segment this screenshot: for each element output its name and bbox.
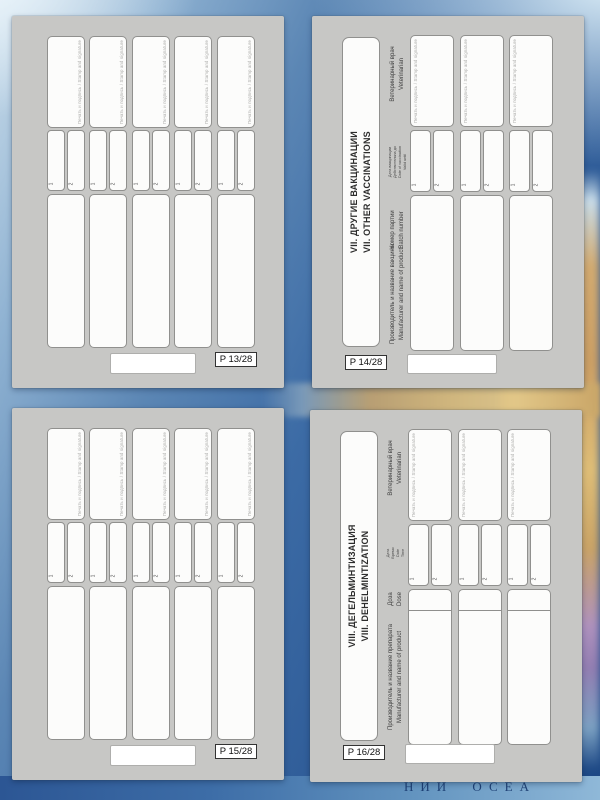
cell-number: 1 — [218, 575, 224, 578]
record-strip: Печать и подпись / Stamp and signature 1… — [410, 16, 454, 388]
cell-number: 2 — [110, 183, 116, 186]
stamp-signature-box: Печать и подпись / Stamp and signature — [174, 428, 212, 520]
date-cell-2: 2 — [532, 130, 553, 192]
sticker-area — [132, 194, 170, 348]
cell-number: 2 — [533, 184, 539, 187]
footer-blank-box — [405, 744, 495, 764]
dose-field-divider — [459, 610, 501, 611]
cell-number: 1 — [175, 575, 181, 578]
record-column: Печать и подпись / Stamp and signature 1… — [132, 408, 170, 780]
date-cell-1: 1 — [410, 130, 431, 192]
date-cell-2: 2 — [194, 522, 212, 583]
date-cells: 1 2 — [217, 522, 255, 583]
page-number: P 15/28 — [220, 746, 253, 757]
record-column: Печать и подпись / Stamp and signature 1… — [89, 408, 127, 780]
date-cell-1: 1 — [47, 522, 65, 583]
sticker-area — [89, 586, 127, 740]
section-title-ru: VIII. ДЕГЕЛЬМИНТИЗАЦИЯ — [346, 524, 359, 647]
cell-number: 2 — [68, 183, 74, 186]
cell-number: 1 — [48, 575, 54, 578]
cell-number: 1 — [409, 578, 415, 581]
stamp-note: Печать и подпись / Stamp and signature — [247, 432, 252, 516]
cell-number: 2 — [484, 184, 490, 187]
date-cell-2: 2 — [152, 130, 170, 191]
veterinarian-stamp-box: Печать и подпись / Stamp and signature — [507, 429, 551, 521]
stamp-signature-box: Печать и подпись / Stamp and signature — [47, 428, 85, 520]
cell-number: 1 — [133, 575, 139, 578]
record-column: Печать и подпись / Stamp and signature 1… — [47, 16, 85, 388]
date-cells: 1 2 — [458, 524, 502, 586]
date-cell-2: 2 — [152, 522, 170, 583]
stamp-note: Печать и подпись / Stamp and signature — [162, 40, 167, 124]
page-number-badge: P 14/28 — [345, 355, 387, 370]
footer-blank-box — [407, 354, 497, 374]
cell-number: 2 — [531, 578, 537, 581]
cell-number: 1 — [508, 578, 514, 581]
date-cell-2: 2 — [483, 130, 504, 192]
vaccine-sticker-area — [410, 195, 454, 351]
section-title-en: VIII. DEHELMINTIZATION — [359, 524, 372, 647]
date-cell-1: 1 — [217, 130, 235, 191]
veterinarian-stamp-box: Печать и подпись / Stamp and signature — [410, 35, 454, 127]
date-cell-1: 1 — [174, 522, 192, 583]
record-column: Печать и подпись / Stamp and signature 1… — [174, 408, 212, 780]
cell-number: 1 — [510, 184, 516, 187]
cell-number: 1 — [90, 575, 96, 578]
stamp-note: Печать и подпись / Stamp and signature — [512, 39, 517, 123]
cell-number: 1 — [48, 183, 54, 186]
record-strip: Печать и подпись / Stamp and signature 1… — [458, 410, 502, 782]
date-cells: 1 2 — [47, 522, 85, 583]
section-title-ru: VII. ДРУГИЕ ВАКЦИНАЦИИ — [348, 131, 361, 253]
date-cell-1: 1 — [174, 130, 192, 191]
stamp-note: Печать и подпись / Stamp and signature — [119, 432, 124, 516]
section-title-en: VII. OTHER VACCINATIONS — [361, 131, 374, 253]
date-cell-2: 2 — [109, 130, 127, 191]
stamp-note: Печать и подпись / Stamp and signature — [119, 40, 124, 124]
passport-page-14: VII. ДРУГИЕ ВАКЦИНАЦИИ VII. OTHER VACCIN… — [312, 16, 584, 388]
stamp-signature-box: Печать и подпись / Stamp and signature — [132, 36, 170, 128]
cell-number: 1 — [461, 184, 467, 187]
date-cells: 1 2 — [408, 524, 452, 586]
date-cells: 1 2 — [47, 130, 85, 191]
cell-number: 2 — [195, 575, 201, 578]
date-cell-1: 1 — [132, 522, 150, 583]
screenshot-root: Lapt НИЙ ОСЕА Печать и подпись / Stamp a… — [0, 0, 600, 800]
record-strip: Печать и подпись / Stamp and signature 1… — [507, 410, 551, 782]
record-column: Печать и подпись / Stamp and signature 1… — [132, 16, 170, 388]
date-cell-1: 1 — [89, 522, 107, 583]
date-cells: 1 2 — [509, 130, 553, 192]
stamp-note: Печать и подпись / Stamp and signature — [204, 432, 209, 516]
sticker-area — [217, 194, 255, 348]
passport-page-13: Печать и подпись / Stamp and signature 1… — [12, 16, 284, 388]
cell-number: 2 — [110, 575, 116, 578]
cell-number: 2 — [153, 183, 159, 186]
vaccine-sticker-area — [509, 195, 553, 351]
date-cells: 1 2 — [410, 130, 454, 192]
cell-number: 2 — [432, 578, 438, 581]
stamp-note: Печать и подпись / Stamp and signature — [77, 432, 82, 516]
stamp-signature-box: Печать и подпись / Stamp and signature — [132, 428, 170, 520]
sticker-area — [132, 586, 170, 740]
dose-field-divider — [508, 610, 550, 611]
stamp-note: Печать и подпись / Stamp and signature — [247, 40, 252, 124]
page-number: P 13/28 — [220, 354, 253, 365]
stamp-note: Печать и подпись / Stamp and signature — [463, 39, 468, 123]
date-cells: 1 2 — [132, 522, 170, 583]
page-number: P 16/28 — [348, 747, 381, 758]
date-cell-2: 2 — [194, 130, 212, 191]
stamp-signature-box: Печать и подпись / Stamp and signature — [89, 36, 127, 128]
date-cells: 1 2 — [460, 130, 504, 192]
stamp-note: Печать и подпись / Stamp and signature — [162, 432, 167, 516]
record-column: Печать и подпись / Stamp and signature 1… — [217, 16, 255, 388]
date-cells: 1 2 — [174, 522, 212, 583]
stamp-note: Печать и подпись / Stamp and signature — [411, 433, 416, 517]
dose-and-product-area — [507, 589, 551, 745]
section-title-box: VII. ДРУГИЕ ВАКЦИНАЦИИ VII. OTHER VACCIN… — [342, 37, 380, 347]
sticker-area — [47, 194, 85, 348]
cell-number: 2 — [195, 183, 201, 186]
stamp-note: Печать и подпись / Stamp and signature — [461, 433, 466, 517]
vaccine-sticker-area — [460, 195, 504, 351]
cell-number: 1 — [411, 184, 417, 187]
date-cell-2: 2 — [109, 522, 127, 583]
passport-page-16: VIII. ДЕГЕЛЬМИНТИЗАЦИЯ VIII. DEHELMINTIZ… — [310, 410, 582, 782]
cell-number: 1 — [175, 183, 181, 186]
dose-and-product-area — [408, 589, 452, 745]
record-strip: Печать и подпись / Stamp and signature 1… — [509, 16, 553, 388]
stamp-note: Печать и подпись / Stamp and signature — [77, 40, 82, 124]
date-cell-1: 1 — [89, 130, 107, 191]
date-cell-1: 1 — [509, 130, 530, 192]
date-cells: 1 2 — [217, 130, 255, 191]
footer-blank-box — [110, 353, 196, 374]
date-cell-2: 2 — [481, 524, 502, 586]
cell-number: 1 — [90, 183, 96, 186]
date-cells: 1 2 — [507, 524, 551, 586]
cell-number: 1 — [133, 183, 139, 186]
veterinarian-stamp-box: Печать и подпись / Stamp and signature — [408, 429, 452, 521]
veterinarian-stamp-box: Печать и подпись / Stamp and signature — [458, 429, 502, 521]
date-cell-2: 2 — [67, 130, 85, 191]
date-cell-1: 1 — [460, 130, 481, 192]
date-cells: 1 2 — [89, 522, 127, 583]
date-cell-2: 2 — [237, 522, 255, 583]
record-column: Печать и подпись / Stamp and signature 1… — [174, 16, 212, 388]
cell-number: 1 — [218, 183, 224, 186]
cell-number: 2 — [153, 575, 159, 578]
record-column: Печать и подпись / Stamp and signature 1… — [89, 16, 127, 388]
sticker-area — [174, 194, 212, 348]
stamp-signature-box: Печать и подпись / Stamp and signature — [47, 36, 85, 128]
record-column: Печать и подпись / Stamp and signature 1… — [47, 408, 85, 780]
stamp-signature-box: Печать и подпись / Stamp and signature — [174, 36, 212, 128]
date-cells: 1 2 — [132, 130, 170, 191]
date-cell-2: 2 — [431, 524, 452, 586]
date-cell-2: 2 — [67, 522, 85, 583]
stamp-signature-box: Печать и подпись / Stamp and signature — [217, 36, 255, 128]
cell-number: 1 — [459, 578, 465, 581]
section-title-box: VIII. ДЕГЕЛЬМИНТИЗАЦИЯ VIII. DEHELMINTIZ… — [340, 431, 378, 741]
stamp-signature-box: Печать и подпись / Stamp and signature — [89, 428, 127, 520]
cell-number: 2 — [434, 184, 440, 187]
date-cell-2: 2 — [237, 130, 255, 191]
sticker-area — [89, 194, 127, 348]
date-cell-1: 1 — [132, 130, 150, 191]
date-cell-2: 2 — [433, 130, 454, 192]
passport-page-15: Печать и подпись / Stamp and signature 1… — [12, 408, 284, 780]
record-column: Печать и подпись / Stamp and signature 1… — [217, 408, 255, 780]
veterinarian-stamp-box: Печать и подпись / Stamp and signature — [509, 35, 553, 127]
stamp-note: Печать и подпись / Stamp and signature — [204, 40, 209, 124]
cell-number: 2 — [238, 183, 244, 186]
stamp-signature-box: Печать и подпись / Stamp and signature — [217, 428, 255, 520]
page-number-badge: P 13/28 — [215, 352, 257, 367]
dose-and-product-area — [458, 589, 502, 745]
cell-number: 2 — [238, 575, 244, 578]
date-cell-2: 2 — [530, 524, 551, 586]
page-number-badge: P 16/28 — [343, 745, 385, 760]
record-strip: Печать и подпись / Stamp and signature 1… — [408, 410, 452, 782]
date-cell-1: 1 — [507, 524, 528, 586]
record-strip: Печать и подпись / Stamp and signature 1… — [460, 16, 504, 388]
stamp-note: Печать и подпись / Stamp and signature — [510, 433, 515, 517]
date-cell-1: 1 — [217, 522, 235, 583]
dose-field-divider — [409, 610, 451, 611]
sticker-area — [47, 586, 85, 740]
veterinarian-stamp-box: Печать и подпись / Stamp and signature — [460, 35, 504, 127]
cell-number: 2 — [68, 575, 74, 578]
stamp-note: Печать и подпись / Stamp and signature — [413, 39, 418, 123]
footer-blank-box — [110, 745, 196, 766]
date-cell-1: 1 — [47, 130, 65, 191]
page-number: P 14/28 — [350, 357, 383, 368]
page-number-badge: P 15/28 — [215, 744, 257, 759]
cell-number: 2 — [482, 578, 488, 581]
date-cell-1: 1 — [408, 524, 429, 586]
date-cells: 1 2 — [174, 130, 212, 191]
date-cell-1: 1 — [458, 524, 479, 586]
sticker-area — [217, 586, 255, 740]
sticker-area — [174, 586, 212, 740]
date-cells: 1 2 — [89, 130, 127, 191]
